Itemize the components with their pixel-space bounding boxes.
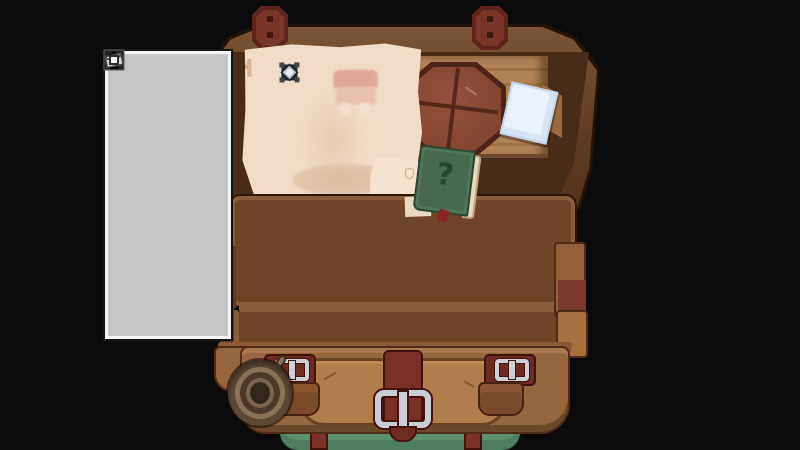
equipment-panel-border — [105, 51, 231, 339]
equipment-grid — [112, 58, 224, 332]
equipment-slot[interactable] — [112, 58, 116, 62]
buckle-icon — [495, 359, 529, 381]
chest-hinge-icon — [472, 6, 508, 50]
faded-chest-sketch — [331, 70, 379, 117]
chest-hinge-icon — [252, 6, 288, 50]
slot-pin-icon — [109, 55, 119, 65]
socket-gem-icon — [277, 60, 301, 84]
socket-gem-item[interactable] — [277, 60, 301, 84]
equipment-panel — [103, 49, 233, 341]
leather-pouch — [478, 382, 524, 416]
rope-coil — [228, 358, 294, 428]
center-buckle-icon — [375, 390, 431, 428]
parchment-slot-list — [247, 58, 295, 59]
game-scene: ? — [0, 0, 800, 450]
chest-right-patch — [558, 280, 586, 312]
equipment-panel-frame — [108, 54, 228, 336]
parchment-slot[interactable] — [247, 59, 251, 77]
quest-book[interactable]: ? — [412, 144, 484, 221]
tray-grid — [231, 196, 575, 306]
book-question-mark: ? — [415, 154, 475, 196]
